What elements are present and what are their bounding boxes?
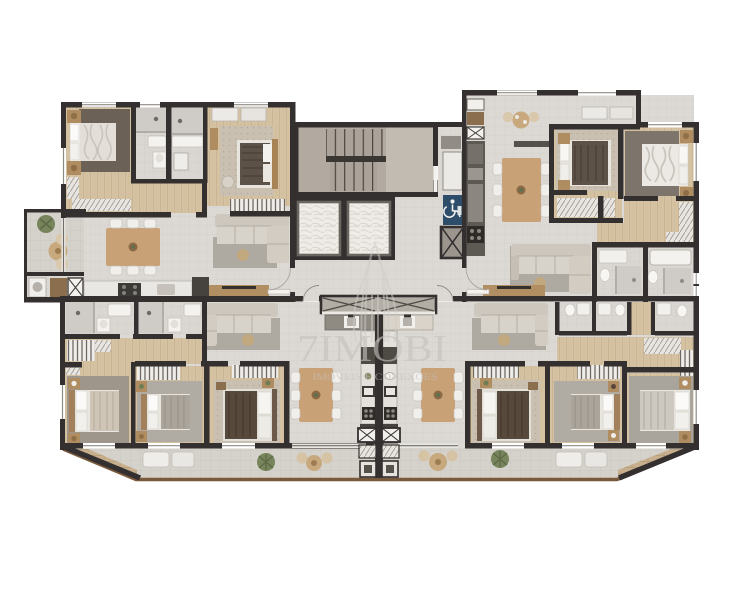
svg-text:7IMOBI: 7IMOBI: [297, 328, 447, 370]
svg-text:IMÓVEIS E CONEXÕES: IMÓVEIS E CONEXÕES: [313, 371, 438, 383]
